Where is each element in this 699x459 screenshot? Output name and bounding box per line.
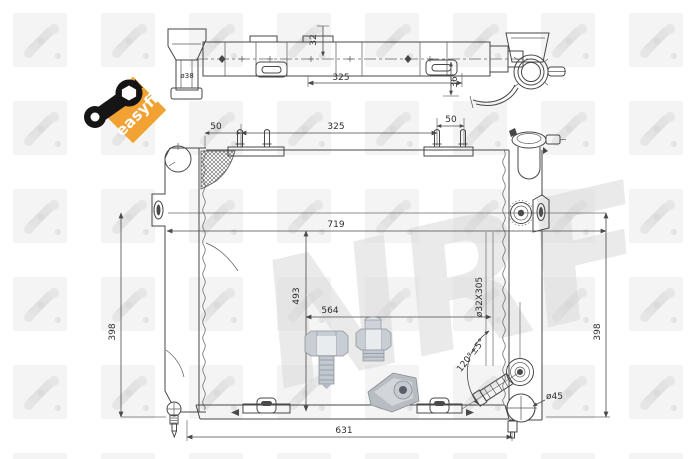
- dim-mount-span-label: 325: [332, 73, 349, 83]
- dim-pin-offset-right-label: 50: [445, 115, 457, 125]
- dim-bottom-span-label: 631: [335, 426, 352, 436]
- dim-tank-offset-label: 32: [309, 34, 319, 45]
- dim-height-left-label: 398: [108, 323, 118, 340]
- drawing-canvas: NRF ø38 32: [0, 0, 699, 459]
- dim-oil-cooler-label: ø32X305: [475, 277, 485, 317]
- dim-pipe-diameter-label: ø38: [180, 71, 194, 80]
- dim-core-height-label: 493: [292, 287, 302, 304]
- dim-height-right-label: 398: [593, 323, 603, 340]
- dim-outlet-diameter-label: ø45: [546, 392, 563, 402]
- dim-overall-width-label: 719: [327, 220, 344, 230]
- dim-lower-span-label: 564: [321, 306, 338, 316]
- dim-pin-offset-left-label: 50: [210, 122, 222, 132]
- dim-bracket-depth-label: 36: [450, 76, 460, 88]
- radiator-technical-drawing: NRF ø38 32: [0, 0, 699, 459]
- dim-pin-span-label: 325: [327, 122, 344, 132]
